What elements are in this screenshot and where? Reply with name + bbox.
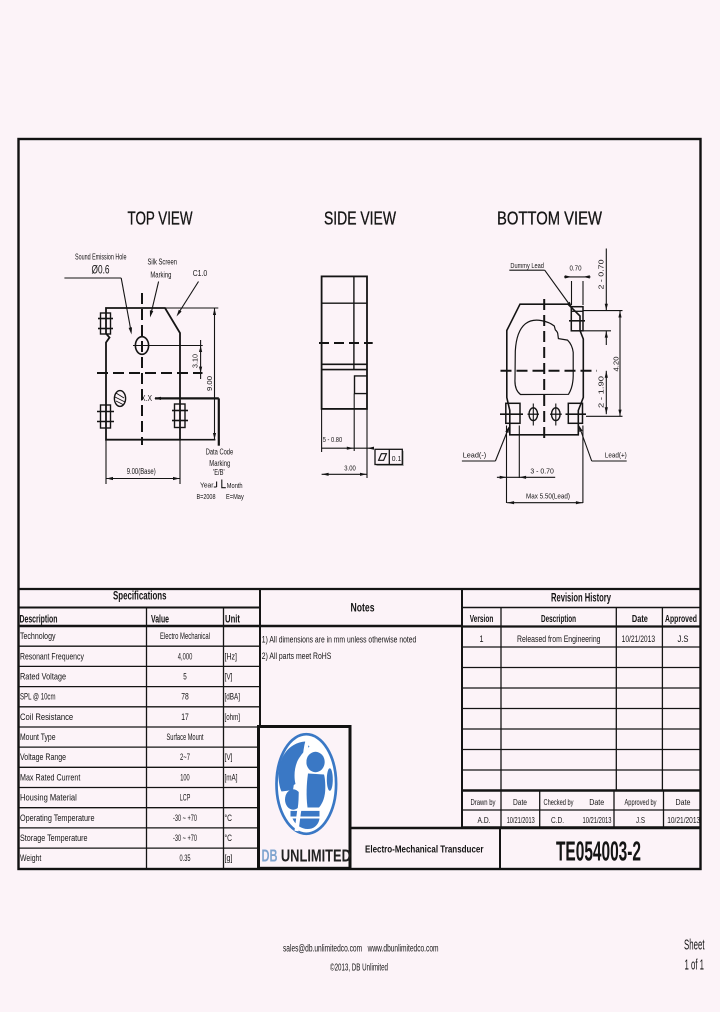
svg-text:E=May: E=May: [226, 492, 244, 501]
svg-text:Silk Screen: Silk Screen: [148, 258, 178, 267]
svg-text:Description: Description: [20, 614, 58, 626]
svg-text:A.D.: A.D.: [478, 815, 491, 825]
svg-text:B=2008: B=2008: [197, 492, 216, 501]
svg-text:Ø0.6: Ø0.6: [92, 263, 110, 277]
svg-text:Revision History: Revision History: [551, 591, 611, 605]
svg-text:1: 1: [480, 634, 484, 644]
svg-text:Date: Date: [676, 797, 691, 807]
svg-text:Sound Emission Hole: Sound Emission Hole: [75, 253, 127, 262]
svg-text:10/21/2013: 10/21/2013: [667, 815, 700, 825]
svg-text:Month: Month: [227, 481, 243, 490]
svg-text:C1.0: C1.0: [193, 269, 208, 278]
svg-text:Notes: Notes: [351, 601, 375, 615]
svg-text:J.S: J.S: [678, 634, 689, 644]
svg-text:5 - 0.80: 5 - 0.80: [323, 435, 343, 444]
svg-text:©2013, DB Unlimited: ©2013, DB Unlimited: [330, 963, 388, 974]
svg-text:Year: Year: [200, 481, 214, 490]
svg-text:4.20: 4.20: [613, 356, 620, 371]
svg-text:[V]: [V]: [225, 752, 233, 762]
svg-text:-30 ~ +70: -30 ~ +70: [173, 833, 197, 843]
svg-text:Rated Voltage: Rated Voltage: [20, 672, 66, 682]
svg-text:Voltage Range: Voltage Range: [20, 752, 66, 762]
svg-text:Date: Date: [632, 614, 648, 625]
svg-text:Description: Description: [541, 614, 576, 625]
svg-text:Date: Date: [589, 797, 604, 807]
svg-text:Released from Engineering: Released from Engineering: [517, 634, 601, 644]
svg-text:Mount Type: Mount Type: [20, 732, 56, 742]
svg-text:17: 17: [181, 712, 189, 722]
svg-text:Lead(-): Lead(-): [463, 451, 487, 460]
svg-text:2 - 1.90: 2 - 1.90: [599, 376, 606, 408]
svg-text:Resonant Frequency: Resonant Frequency: [20, 651, 84, 661]
svg-text:Coil Resistance: Coil Resistance: [20, 712, 73, 722]
svg-text:Data Code: Data Code: [206, 448, 234, 457]
svg-text:-30 ~ +70: -30 ~ +70: [173, 813, 197, 823]
svg-text:0.70: 0.70: [570, 266, 582, 273]
svg-text:Marking: Marking: [150, 271, 171, 280]
svg-text:SPL @ 10cm: SPL @ 10cm: [20, 692, 56, 702]
svg-text:Storage Temperature: Storage Temperature: [20, 833, 88, 843]
svg-text:Marking: Marking: [209, 459, 230, 468]
svg-text:0.1: 0.1: [392, 454, 402, 463]
svg-text:Electro-Mechanical Transducer: Electro-Mechanical Transducer: [365, 844, 484, 856]
svg-text:78: 78: [181, 692, 189, 702]
svg-text:Surface Mount: Surface Mount: [167, 732, 204, 742]
svg-text:'E/B': 'E/B': [213, 468, 225, 477]
svg-text:X.X: X.X: [141, 394, 153, 403]
svg-text:Drawn by: Drawn by: [471, 797, 497, 807]
svg-text:Housing Material: Housing Material: [20, 793, 77, 803]
svg-text:Unit: Unit: [225, 614, 240, 626]
svg-text:Max Rated Current: Max Rated Current: [20, 772, 81, 782]
svg-text:[Hz]: [Hz]: [225, 651, 238, 661]
svg-text:°C: °C: [225, 813, 233, 823]
svg-text:Technology: Technology: [20, 631, 56, 641]
svg-text:UNLIMITED: UNLIMITED: [281, 846, 351, 866]
svg-text:5: 5: [183, 672, 187, 682]
svg-text:Dummy Lead: Dummy Lead: [510, 261, 544, 270]
svg-text:Specifications: Specifications: [113, 588, 167, 602]
svg-text:9.00: 9.00: [205, 376, 214, 391]
svg-text:Checked by: Checked by: [544, 797, 574, 807]
svg-text:3.10: 3.10: [191, 354, 200, 368]
svg-text:10/21/2013: 10/21/2013: [507, 815, 535, 825]
svg-text:3 - 0.70: 3 - 0.70: [530, 469, 554, 476]
svg-text:[g]: [g]: [225, 853, 233, 863]
svg-text:2) All parts meet RoHS: 2) All parts meet RoHS: [262, 651, 332, 661]
svg-text:sales@db.unlimitedco.com www: sales@db.unlimitedco.com www.dbunlimited…: [283, 944, 439, 955]
svg-text:DB: DB: [262, 846, 278, 866]
svg-text:Value: Value: [151, 614, 169, 626]
svg-text:2~7: 2~7: [180, 752, 190, 762]
svg-text:Lead(+): Lead(+): [605, 451, 627, 460]
svg-text:C.D.: C.D.: [551, 815, 564, 825]
svg-text:Version: Version: [470, 614, 494, 625]
svg-text:Operating Temperature: Operating Temperature: [20, 813, 95, 823]
svg-text:10/21/2013: 10/21/2013: [622, 634, 656, 644]
svg-text:[mA]: [mA]: [225, 772, 238, 782]
svg-text:10/21/2013: 10/21/2013: [583, 815, 612, 825]
svg-text:100: 100: [180, 772, 190, 782]
svg-text:2 - 0.70: 2 - 0.70: [599, 259, 606, 289]
svg-text:J.S: J.S: [636, 815, 645, 825]
svg-text:Date: Date: [513, 797, 527, 807]
svg-text:1) All dimensions are in mm un: 1) All dimensions are in mm unless other…: [262, 635, 417, 645]
svg-text:TOP VIEW: TOP VIEW: [128, 209, 193, 229]
svg-text:0.35: 0.35: [180, 853, 191, 863]
svg-text:BOTTOM VIEW: BOTTOM VIEW: [497, 209, 602, 229]
svg-text:1 of 1: 1 of 1: [685, 958, 705, 974]
svg-text:Electro Mechanical: Electro Mechanical: [160, 631, 210, 641]
svg-text:TE054003-2: TE054003-2: [556, 836, 641, 867]
svg-text:Approved: Approved: [665, 614, 697, 625]
svg-text:3.00: 3.00: [344, 464, 356, 473]
svg-text:[ohm]: [ohm]: [225, 712, 241, 722]
svg-text:Max 5.50(Lead): Max 5.50(Lead): [526, 491, 570, 500]
svg-text:LCP: LCP: [180, 793, 191, 803]
svg-text:4,000: 4,000: [178, 651, 193, 661]
svg-text:°C: °C: [225, 833, 233, 843]
svg-text:Sheet: Sheet: [684, 938, 705, 954]
svg-text:SIDE VIEW: SIDE VIEW: [324, 209, 396, 229]
svg-text:Approved by: Approved by: [625, 797, 657, 807]
svg-text:[dBA]: [dBA]: [225, 692, 241, 702]
svg-text:9.00(Base): 9.00(Base): [127, 467, 156, 476]
svg-text:[V]: [V]: [225, 672, 233, 682]
svg-text:Weight: Weight: [20, 853, 42, 863]
